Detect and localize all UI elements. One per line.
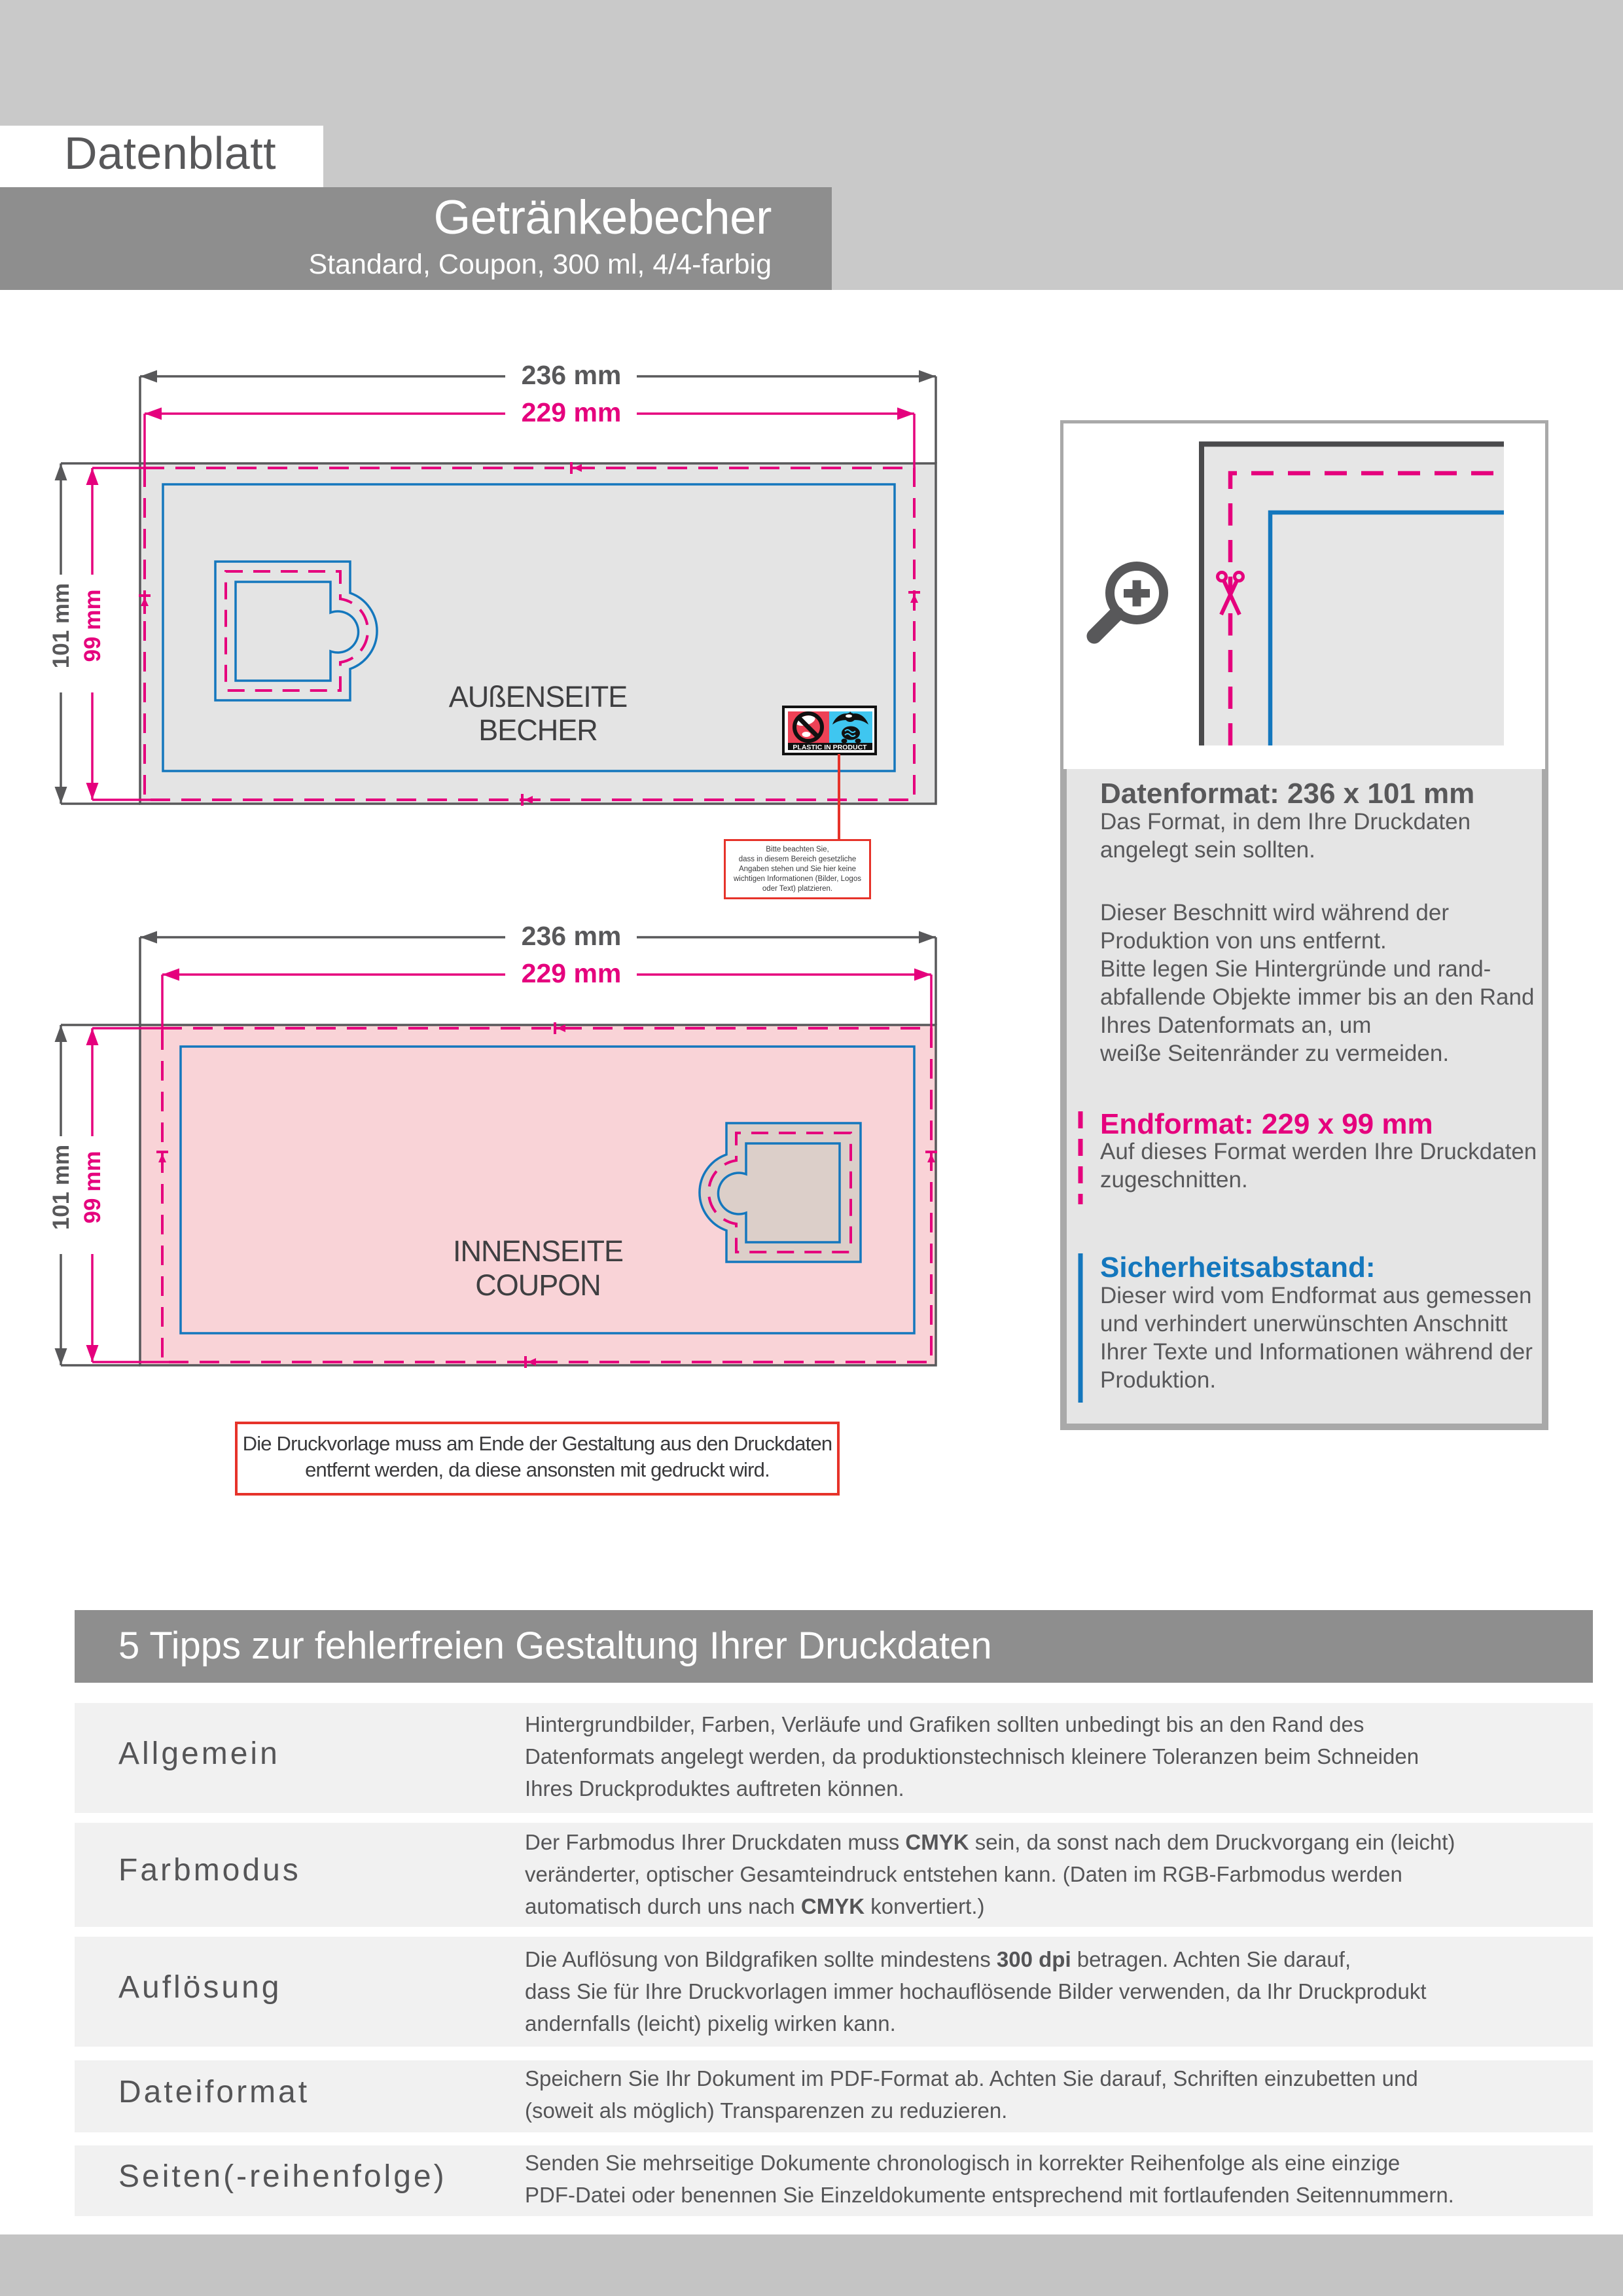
svg-text:99 mm: 99 mm	[80, 590, 105, 662]
svg-text:101 mm: 101 mm	[48, 1145, 74, 1230]
svg-text:99 mm: 99 mm	[80, 1151, 105, 1224]
svg-text:COUPON: COUPON	[475, 1268, 601, 1302]
svg-text:229 mm: 229 mm	[522, 958, 622, 988]
svg-text:236 mm: 236 mm	[522, 921, 622, 951]
svg-text:229 mm: 229 mm	[522, 397, 622, 427]
svg-text:PLASTIC IN PRODUCT: PLASTIC IN PRODUCT	[793, 744, 867, 751]
svg-text:236 mm: 236 mm	[522, 360, 622, 390]
svg-text:AUßENSEITE: AUßENSEITE	[449, 680, 628, 713]
svg-text:INNENSEITE: INNENSEITE	[453, 1234, 623, 1268]
svg-text:101 mm: 101 mm	[48, 583, 74, 668]
svg-text:BECHER: BECHER	[478, 713, 597, 747]
